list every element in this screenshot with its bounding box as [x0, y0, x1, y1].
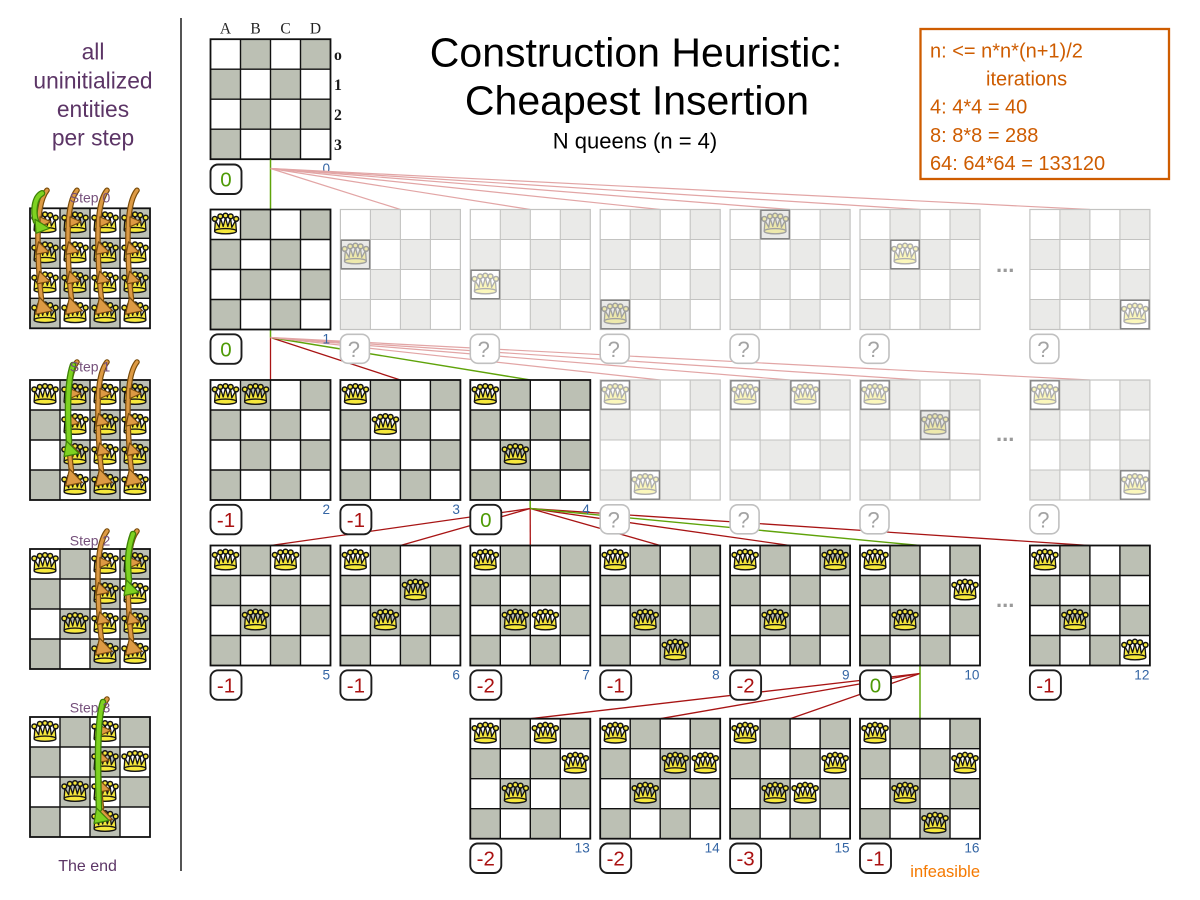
- svg-text:?: ?: [1037, 507, 1049, 532]
- svg-text:infeasible: infeasible: [910, 863, 980, 881]
- svg-text:2: 2: [334, 107, 342, 124]
- svg-text:-1: -1: [866, 848, 884, 871]
- svg-text:14: 14: [705, 841, 721, 856]
- svg-text:?: ?: [737, 507, 749, 532]
- svg-text:?: ?: [1037, 337, 1049, 362]
- svg-text:8: 8: [712, 667, 720, 682]
- svg-text:13: 13: [575, 841, 590, 856]
- svg-text:8: 8*8 = 288: 8: 8*8 = 288: [930, 125, 1038, 147]
- svg-text:Step 3: Step 3: [70, 699, 111, 715]
- svg-text:A: A: [220, 21, 232, 38]
- svg-text:-2: -2: [607, 848, 625, 871]
- svg-text:0: 0: [870, 675, 881, 698]
- svg-text:Cheapest Insertion: Cheapest Insertion: [465, 77, 809, 123]
- svg-text:-3: -3: [736, 848, 754, 871]
- svg-text:Step 1: Step 1: [70, 359, 111, 375]
- svg-text:-2: -2: [736, 675, 754, 698]
- svg-text:?: ?: [867, 337, 879, 362]
- svg-text:1: 1: [322, 331, 330, 346]
- svg-text:0: 0: [480, 509, 491, 532]
- svg-text:?: ?: [608, 337, 620, 362]
- svg-text:-1: -1: [1036, 675, 1054, 698]
- svg-text:N queens (n = 4): N queens (n = 4): [553, 129, 717, 154]
- svg-text:-1: -1: [217, 509, 235, 532]
- svg-text:12: 12: [1134, 667, 1149, 682]
- svg-text:10: 10: [964, 667, 980, 682]
- svg-text:16: 16: [964, 841, 979, 856]
- svg-text:B: B: [250, 21, 260, 38]
- svg-text:?: ?: [737, 337, 749, 362]
- svg-text:?: ?: [867, 507, 879, 532]
- svg-text:...: ...: [996, 587, 1014, 612]
- svg-text:6: 6: [452, 667, 460, 682]
- svg-text:Step 0: Step 0: [70, 189, 111, 205]
- svg-text:...: ...: [996, 252, 1014, 277]
- svg-text:9: 9: [842, 667, 850, 682]
- svg-text:Construction Heuristic:: Construction Heuristic:: [430, 30, 842, 76]
- svg-text:per step: per step: [52, 125, 134, 151]
- svg-text:0: 0: [220, 169, 231, 192]
- svg-text:all: all: [82, 39, 105, 65]
- svg-text:15: 15: [834, 841, 849, 856]
- svg-text:3: 3: [452, 502, 460, 517]
- svg-text:-2: -2: [477, 848, 495, 871]
- svg-text:0: 0: [220, 339, 231, 362]
- svg-text:5: 5: [322, 667, 330, 682]
- svg-text:entities: entities: [57, 96, 129, 122]
- svg-text:-1: -1: [347, 509, 365, 532]
- svg-text:uninitialized: uninitialized: [33, 67, 152, 93]
- svg-text:-2: -2: [477, 675, 495, 698]
- svg-text:2: 2: [322, 502, 330, 517]
- svg-text:4: 4*4 = 40: 4: 4*4 = 40: [930, 97, 1027, 119]
- svg-text:iterations: iterations: [986, 69, 1067, 91]
- svg-text:-1: -1: [217, 675, 235, 698]
- svg-text:-1: -1: [347, 675, 365, 698]
- svg-text:?: ?: [478, 337, 490, 362]
- svg-text:-1: -1: [607, 675, 625, 698]
- svg-text:n: <= n*n*(n+1)/2: n: <= n*n*(n+1)/2: [930, 40, 1083, 62]
- svg-text:1: 1: [334, 77, 342, 94]
- svg-text:Step 2: Step 2: [70, 532, 111, 548]
- svg-text:7: 7: [582, 667, 590, 682]
- svg-text:o: o: [334, 47, 342, 64]
- svg-text:64: 64*64 = 133120: 64: 64*64 = 133120: [930, 153, 1105, 175]
- svg-text:C: C: [280, 21, 290, 38]
- svg-text:...: ...: [996, 421, 1014, 446]
- svg-text:The end: The end: [58, 858, 117, 875]
- svg-text:4: 4: [582, 502, 590, 517]
- svg-text:3: 3: [334, 137, 342, 154]
- svg-text:?: ?: [608, 507, 620, 532]
- svg-text:?: ?: [348, 337, 360, 362]
- svg-text:D: D: [310, 21, 321, 38]
